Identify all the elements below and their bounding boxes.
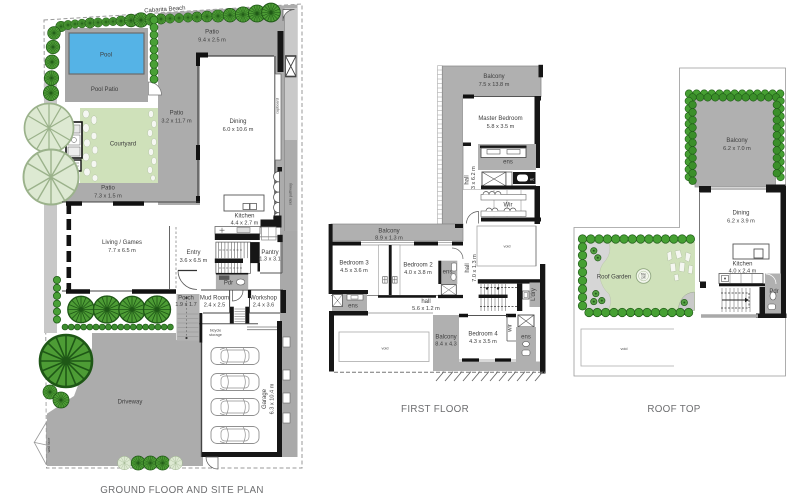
svg-text:wc: wc bbox=[530, 178, 534, 182]
svg-text:Pantry: Pantry bbox=[261, 250, 278, 256]
svg-text:Balcony: Balcony bbox=[378, 229, 399, 235]
svg-text:void: void bbox=[504, 245, 511, 249]
svg-text:Kitchen: Kitchen bbox=[234, 214, 254, 220]
svg-text:side pathway: side pathway bbox=[289, 183, 293, 205]
svg-text:void: void bbox=[621, 347, 628, 351]
svg-text:ens: ens bbox=[348, 304, 358, 310]
svg-text:3.2 x 11.7 m: 3.2 x 11.7 m bbox=[161, 119, 192, 125]
svg-text:Wir: Wir bbox=[504, 203, 513, 209]
svg-text:hall: hall bbox=[421, 299, 430, 305]
svg-text:cupboard: cupboard bbox=[276, 98, 280, 114]
svg-text:4.0 x 3.8 m: 4.0 x 3.8 m bbox=[404, 270, 432, 276]
svg-text:Mud Room: Mud Room bbox=[200, 296, 229, 302]
svg-text:9.4 x 2.5 m: 9.4 x 2.5 m bbox=[198, 38, 226, 44]
svg-text:FIRST FLOOR: FIRST FLOOR bbox=[401, 404, 469, 415]
svg-text:wall face: wall face bbox=[47, 438, 51, 453]
svg-text:2.4 x 3.6: 2.4 x 3.6 bbox=[253, 303, 274, 309]
svg-text:ens: ens bbox=[503, 160, 513, 166]
svg-text:Bedroom 2: Bedroom 2 bbox=[403, 263, 433, 269]
svg-text:8.4 x 4.3: 8.4 x 4.3 bbox=[435, 342, 456, 348]
svg-text:Patio: Patio bbox=[205, 30, 219, 36]
svg-text:bicycle: bicycle bbox=[210, 329, 222, 333]
svg-text:Bedroom 4: Bedroom 4 bbox=[468, 332, 498, 338]
svg-text:Living / Games: Living / Games bbox=[102, 240, 142, 246]
svg-text:ens: ens bbox=[443, 270, 453, 276]
svg-text:storage: storage bbox=[209, 333, 222, 337]
svg-text:L'dry: L'dry bbox=[531, 288, 537, 301]
svg-text:wir: wir bbox=[508, 324, 514, 333]
svg-text:Patio: Patio bbox=[170, 111, 184, 117]
svg-text:2.4 x 2.5: 2.4 x 2.5 bbox=[204, 303, 225, 309]
svg-text:4.3 x 3.5 m: 4.3 x 3.5 m bbox=[469, 339, 497, 345]
svg-text:Pdr: Pdr bbox=[224, 281, 233, 287]
svg-text:Courtyard: Courtyard bbox=[110, 142, 136, 148]
svg-text:7.7 x 6.5 m: 7.7 x 6.5 m bbox=[108, 248, 136, 254]
svg-text:Driveway: Driveway bbox=[118, 400, 143, 406]
svg-text:hall: hall bbox=[465, 263, 471, 272]
svg-text:6.0 x 10.6 m: 6.0 x 10.6 m bbox=[223, 127, 254, 133]
svg-text:Pool Patio: Pool Patio bbox=[91, 87, 119, 93]
svg-text:ens: ens bbox=[521, 335, 531, 341]
svg-text:hall: hall bbox=[465, 175, 471, 184]
svg-text:Patio: Patio bbox=[101, 186, 115, 192]
svg-text:Pdr: Pdr bbox=[769, 289, 778, 295]
svg-text:4.4 x 2.7 m: 4.4 x 2.7 m bbox=[231, 221, 259, 227]
svg-text:Balcony: Balcony bbox=[483, 74, 504, 80]
svg-text:Dining: Dining bbox=[732, 211, 749, 217]
svg-text:Roof Garden: Roof Garden bbox=[597, 274, 631, 280]
svg-text:Porch: Porch bbox=[178, 296, 194, 302]
svg-text:7.3 x 1.5 m: 7.3 x 1.5 m bbox=[94, 194, 122, 200]
svg-text:6.2 x 7.0 m: 6.2 x 7.0 m bbox=[723, 146, 751, 152]
svg-text:Pool: Pool bbox=[100, 53, 112, 59]
svg-text:6.2 x 3.9 m: 6.2 x 3.9 m bbox=[727, 219, 755, 225]
svg-text:Kitchen: Kitchen bbox=[732, 262, 752, 268]
svg-text:Dining: Dining bbox=[229, 119, 246, 125]
svg-text:Balcony: Balcony bbox=[435, 335, 456, 341]
svg-text:Garage: Garage bbox=[262, 388, 268, 409]
svg-text:Entry: Entry bbox=[186, 250, 200, 256]
svg-text:3.6 x 6.5 m: 3.6 x 6.5 m bbox=[180, 258, 208, 264]
svg-text:5.8 x 3.5 m: 5.8 x 3.5 m bbox=[487, 124, 515, 130]
svg-text:6.3 x 10.4 m: 6.3 x 10.4 m bbox=[270, 383, 276, 414]
svg-text:void: void bbox=[382, 347, 389, 351]
svg-text:7.5 x 13.8 m: 7.5 x 13.8 m bbox=[479, 82, 510, 88]
svg-text:1.9 x 1.7: 1.9 x 1.7 bbox=[175, 302, 196, 308]
svg-text:4.5 x 3.6 m: 4.5 x 3.6 m bbox=[340, 268, 368, 274]
svg-text:GROUND FLOOR AND SITE PLAN: GROUND FLOOR AND SITE PLAN bbox=[100, 485, 264, 496]
svg-text:1.3 x 3.1: 1.3 x 3.1 bbox=[259, 257, 280, 263]
svg-text:8.9 x 1.3 m: 8.9 x 1.3 m bbox=[375, 236, 403, 242]
svg-text:Balcony: Balcony bbox=[726, 138, 747, 144]
svg-text:ROOF TOP: ROOF TOP bbox=[647, 404, 700, 415]
svg-text:Master Bedroom: Master Bedroom bbox=[478, 116, 522, 122]
svg-text:Bedroom 3: Bedroom 3 bbox=[339, 261, 369, 267]
svg-text:Workshop: Workshop bbox=[250, 296, 278, 302]
